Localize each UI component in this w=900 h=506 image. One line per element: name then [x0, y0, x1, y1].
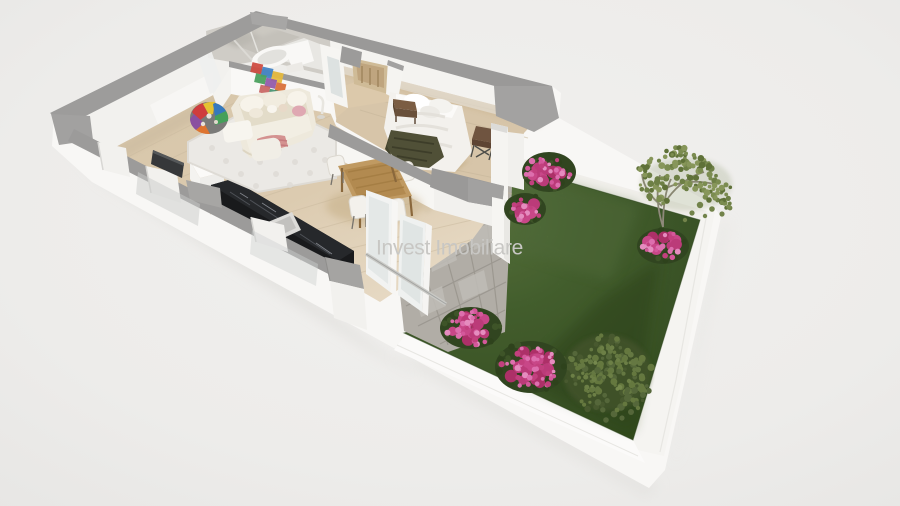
svg-text:Invest Imobiliare: Invest Imobiliare [376, 237, 523, 260]
